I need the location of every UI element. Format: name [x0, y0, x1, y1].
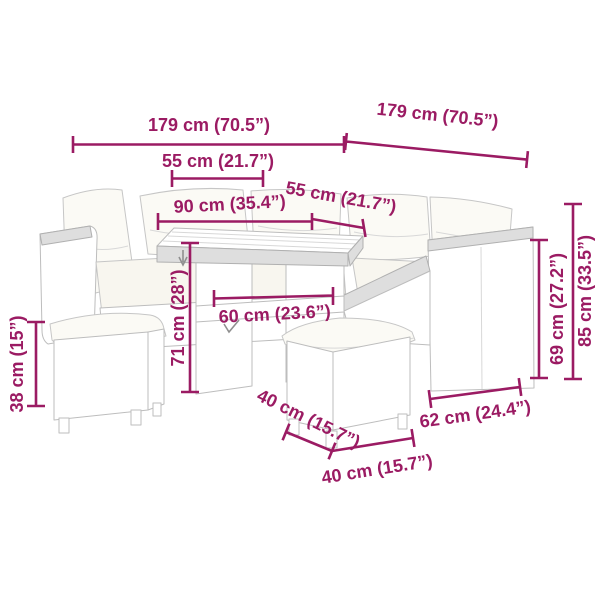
dim-label-stool-width: 40 cm (15.7”) [320, 450, 434, 487]
dim-label-table-height: 71 cm (28”) [168, 269, 188, 366]
dim-label-sofa-depth: 62 cm (24.4”) [418, 396, 532, 431]
stool-leg [131, 410, 141, 425]
dim-label-side-width: 179 cm (70.5”) [376, 99, 499, 132]
dim-line-side-width [345, 133, 528, 168]
stool-box-side [148, 329, 164, 410]
stool-leg [59, 418, 69, 433]
dimension-diagram-canvas: 179 cm (70.5”) 179 cm (70.5”) 55 cm (21.… [0, 0, 600, 600]
dim-label-front-width: 179 cm (70.5”) [148, 115, 270, 135]
dim-label-backrest-height: 69 cm (27.2”) [547, 253, 567, 365]
stool-leg [398, 414, 407, 429]
stool-leg [153, 403, 161, 416]
dim-line-seat-width [172, 170, 263, 187]
stool-left [50, 313, 166, 433]
product-dimension-diagram: 179 cm (70.5”) 179 cm (70.5”) 55 cm (21.… [0, 0, 600, 600]
dim-label-overall-height: 85 cm (33.5”) [575, 235, 595, 347]
dim-label-stool-height: 38 cm (15”) [7, 315, 27, 412]
dim-label-seat-width: 55 cm (21.7”) [162, 151, 274, 171]
stool-box-front [54, 332, 148, 420]
